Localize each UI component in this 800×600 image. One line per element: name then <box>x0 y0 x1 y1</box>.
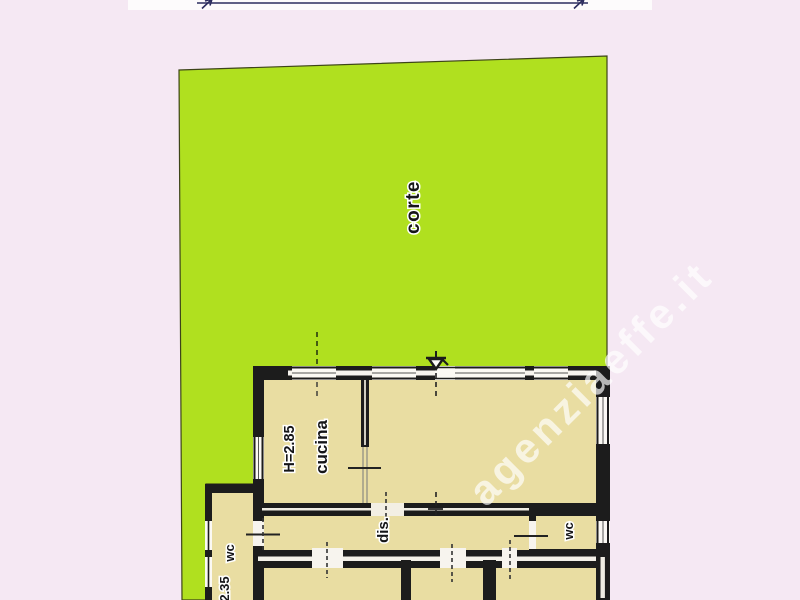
svg-text:2.35: 2.35 <box>217 576 232 600</box>
svg-text:H=2.85: H=2.85 <box>282 425 298 472</box>
svg-text:cucina: cucina <box>312 420 331 474</box>
svg-text:wc: wc <box>561 522 576 540</box>
svg-text:dis.: dis. <box>375 517 392 543</box>
svg-text:wc: wc <box>222 544 237 562</box>
svg-text:corte: corte <box>403 180 424 234</box>
